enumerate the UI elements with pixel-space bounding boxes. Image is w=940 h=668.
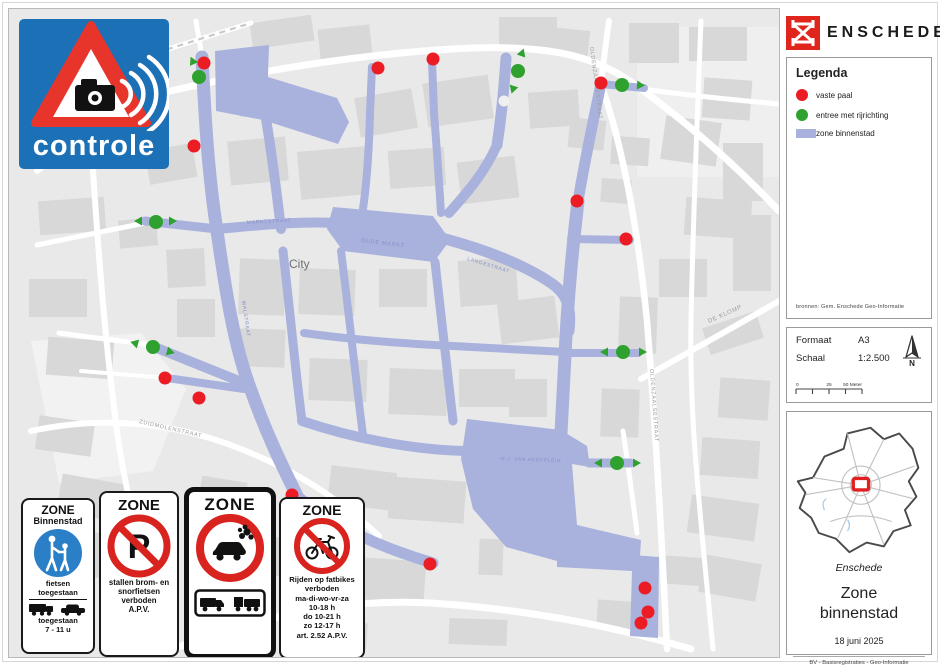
no-parking-icon: P xyxy=(106,513,172,579)
svg-text:25: 25 xyxy=(826,382,832,388)
map-panel: OLDENZAALSESTRAATOLDENZAALSESTRAATDE KLO… xyxy=(8,8,780,658)
legend-item: zone binnenstad xyxy=(796,129,922,138)
svg-text:N: N xyxy=(909,359,915,367)
green-dot-icon xyxy=(796,109,808,121)
legend-item: entree met rijrichting xyxy=(796,109,922,121)
legend-item: vaste paal xyxy=(796,89,922,101)
credit-line: BV - Basisregistraties - Geo-Informatie xyxy=(793,656,925,668)
divider xyxy=(29,599,88,600)
zone-sign-binnenstad: ZONE Binnenstad fietsentoegestaan toeges… xyxy=(21,498,95,654)
controle-sign: controle xyxy=(19,19,169,169)
sign-text: Rijden op fatbikesverboden ma-di-wo-vr-z… xyxy=(289,575,354,640)
sign-text: fietsentoegestaan xyxy=(38,580,78,597)
sidebar: ENSCHEDE Legenda vaste paal entree met r… xyxy=(786,0,934,664)
pedestrian-zone-icon xyxy=(31,526,85,580)
enschede-overview-map xyxy=(792,418,926,560)
legend-title: Legenda xyxy=(796,66,922,80)
svg-text:0: 0 xyxy=(796,382,799,388)
truck-car-icons xyxy=(27,601,89,617)
legend-panel: Legenda vaste paal entree met rijrichtin… xyxy=(786,57,932,319)
title-panel: Enschede Zonebinnenstad 18 juni 2025 BV … xyxy=(786,411,932,655)
svg-text:City: City xyxy=(289,257,310,271)
map-title: Zonebinnenstad xyxy=(820,584,898,624)
zone-sign-no-moped-parking: ZONE P stallen brom- ensnorfietsen verbo… xyxy=(99,491,179,657)
map-date: 18 juni 2025 xyxy=(834,636,883,646)
no-fatbikes-icon xyxy=(293,517,351,575)
scale-bar: 0 25 50 Meter xyxy=(795,380,871,397)
place-label: Enschede xyxy=(836,562,883,574)
sign-subheader: Binnenstad xyxy=(33,516,82,526)
no-polluting-cars-icon xyxy=(195,513,265,583)
zone-sign-milieuzone: ZONE xyxy=(184,487,276,658)
zone-sign-no-fatbikes: ZONE Rijden op fatbikesverboden ma-di-wo… xyxy=(279,497,365,658)
legend-source: bronnen: Gem. Enschede Geo-Informatie xyxy=(796,304,922,310)
north-arrow-icon: N xyxy=(901,333,923,367)
red-dot-icon xyxy=(796,89,808,101)
sign-header: ZONE xyxy=(118,498,160,513)
enschede-emblem-icon xyxy=(786,16,820,50)
sign-text: stallen brom- ensnorfietsen verbodenA.P.… xyxy=(109,579,169,615)
svg-text:50 Meter: 50 Meter xyxy=(843,382,862,388)
logo-text: ENSCHEDE xyxy=(827,24,940,42)
sign-header: ZONE xyxy=(204,496,255,513)
sign-header: ZONE xyxy=(303,503,342,517)
minimap-zone-marker xyxy=(853,478,868,489)
sign-header: ZONE xyxy=(41,504,74,516)
info-panel: FormaatA3 Schaal1:2.500 N 0 25 50 Meter xyxy=(786,327,932,403)
controle-label: controle xyxy=(19,130,169,163)
sign-text: toegestaan7 - 11 u xyxy=(38,617,78,634)
enschede-logo: ENSCHEDE xyxy=(786,14,934,52)
camera-warning-icon xyxy=(19,19,169,131)
van-truck-plate-icon xyxy=(194,589,266,617)
zone-swatch-icon xyxy=(796,129,816,138)
